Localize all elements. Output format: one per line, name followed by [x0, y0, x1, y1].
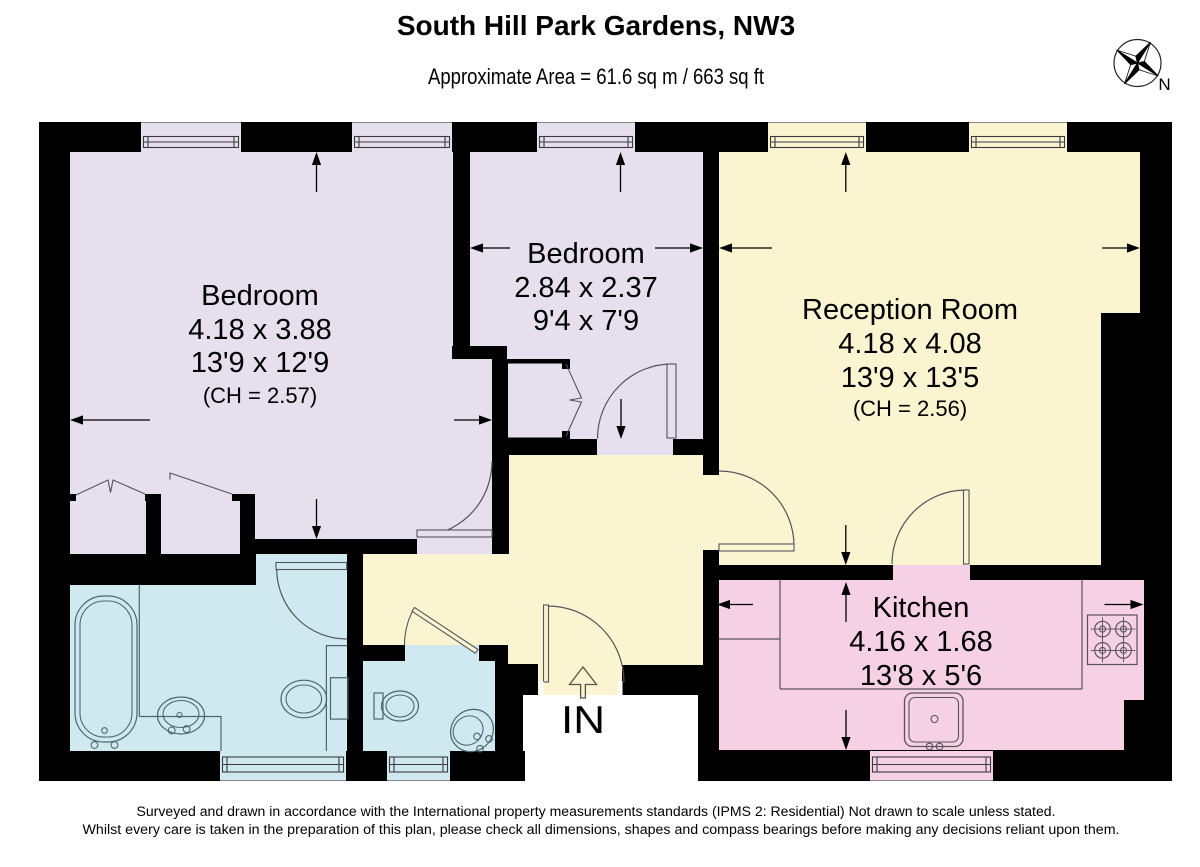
svg-text:4.18 x 4.08: 4.18 x 4.08 — [838, 328, 982, 360]
svg-text:Whilst every care is taken in: Whilst every care is taken in the prepar… — [83, 821, 1120, 837]
svg-text:(CH = 2.56): (CH = 2.56) — [853, 396, 967, 421]
svg-text:2.84 x 2.37: 2.84 x 2.37 — [514, 272, 658, 304]
svg-text:4.16 x 1.68: 4.16 x 1.68 — [849, 626, 993, 658]
svg-text:13'8 x 5'6: 13'8 x 5'6 — [860, 660, 982, 692]
svg-text:9'4 x 7'9: 9'4 x 7'9 — [533, 305, 639, 337]
svg-text:(CH = 2.57): (CH = 2.57) — [203, 383, 317, 408]
svg-text:South Hill Park Gardens, NW3: South Hill Park Gardens, NW3 — [397, 10, 795, 41]
svg-text:Approximate Area = 61.6 sq m /: Approximate Area = 61.6 sq m / 663 sq ft — [428, 64, 765, 89]
svg-text:IN: IN — [561, 699, 605, 742]
svg-text:13'9 x 13'5: 13'9 x 13'5 — [841, 362, 979, 394]
svg-text:Kitchen: Kitchen — [873, 592, 970, 624]
svg-text:N: N — [1158, 75, 1170, 94]
svg-text:Bedroom: Bedroom — [201, 280, 319, 312]
svg-text:13'9 x 12'9: 13'9 x 12'9 — [191, 347, 329, 379]
svg-text:4.18 x 3.88: 4.18 x 3.88 — [188, 314, 332, 346]
svg-text:Surveyed and drawn in accordan: Surveyed and drawn in accordance with th… — [137, 803, 1056, 819]
svg-text:Reception Room: Reception Room — [802, 294, 1018, 326]
svg-text:Bedroom: Bedroom — [527, 238, 645, 270]
